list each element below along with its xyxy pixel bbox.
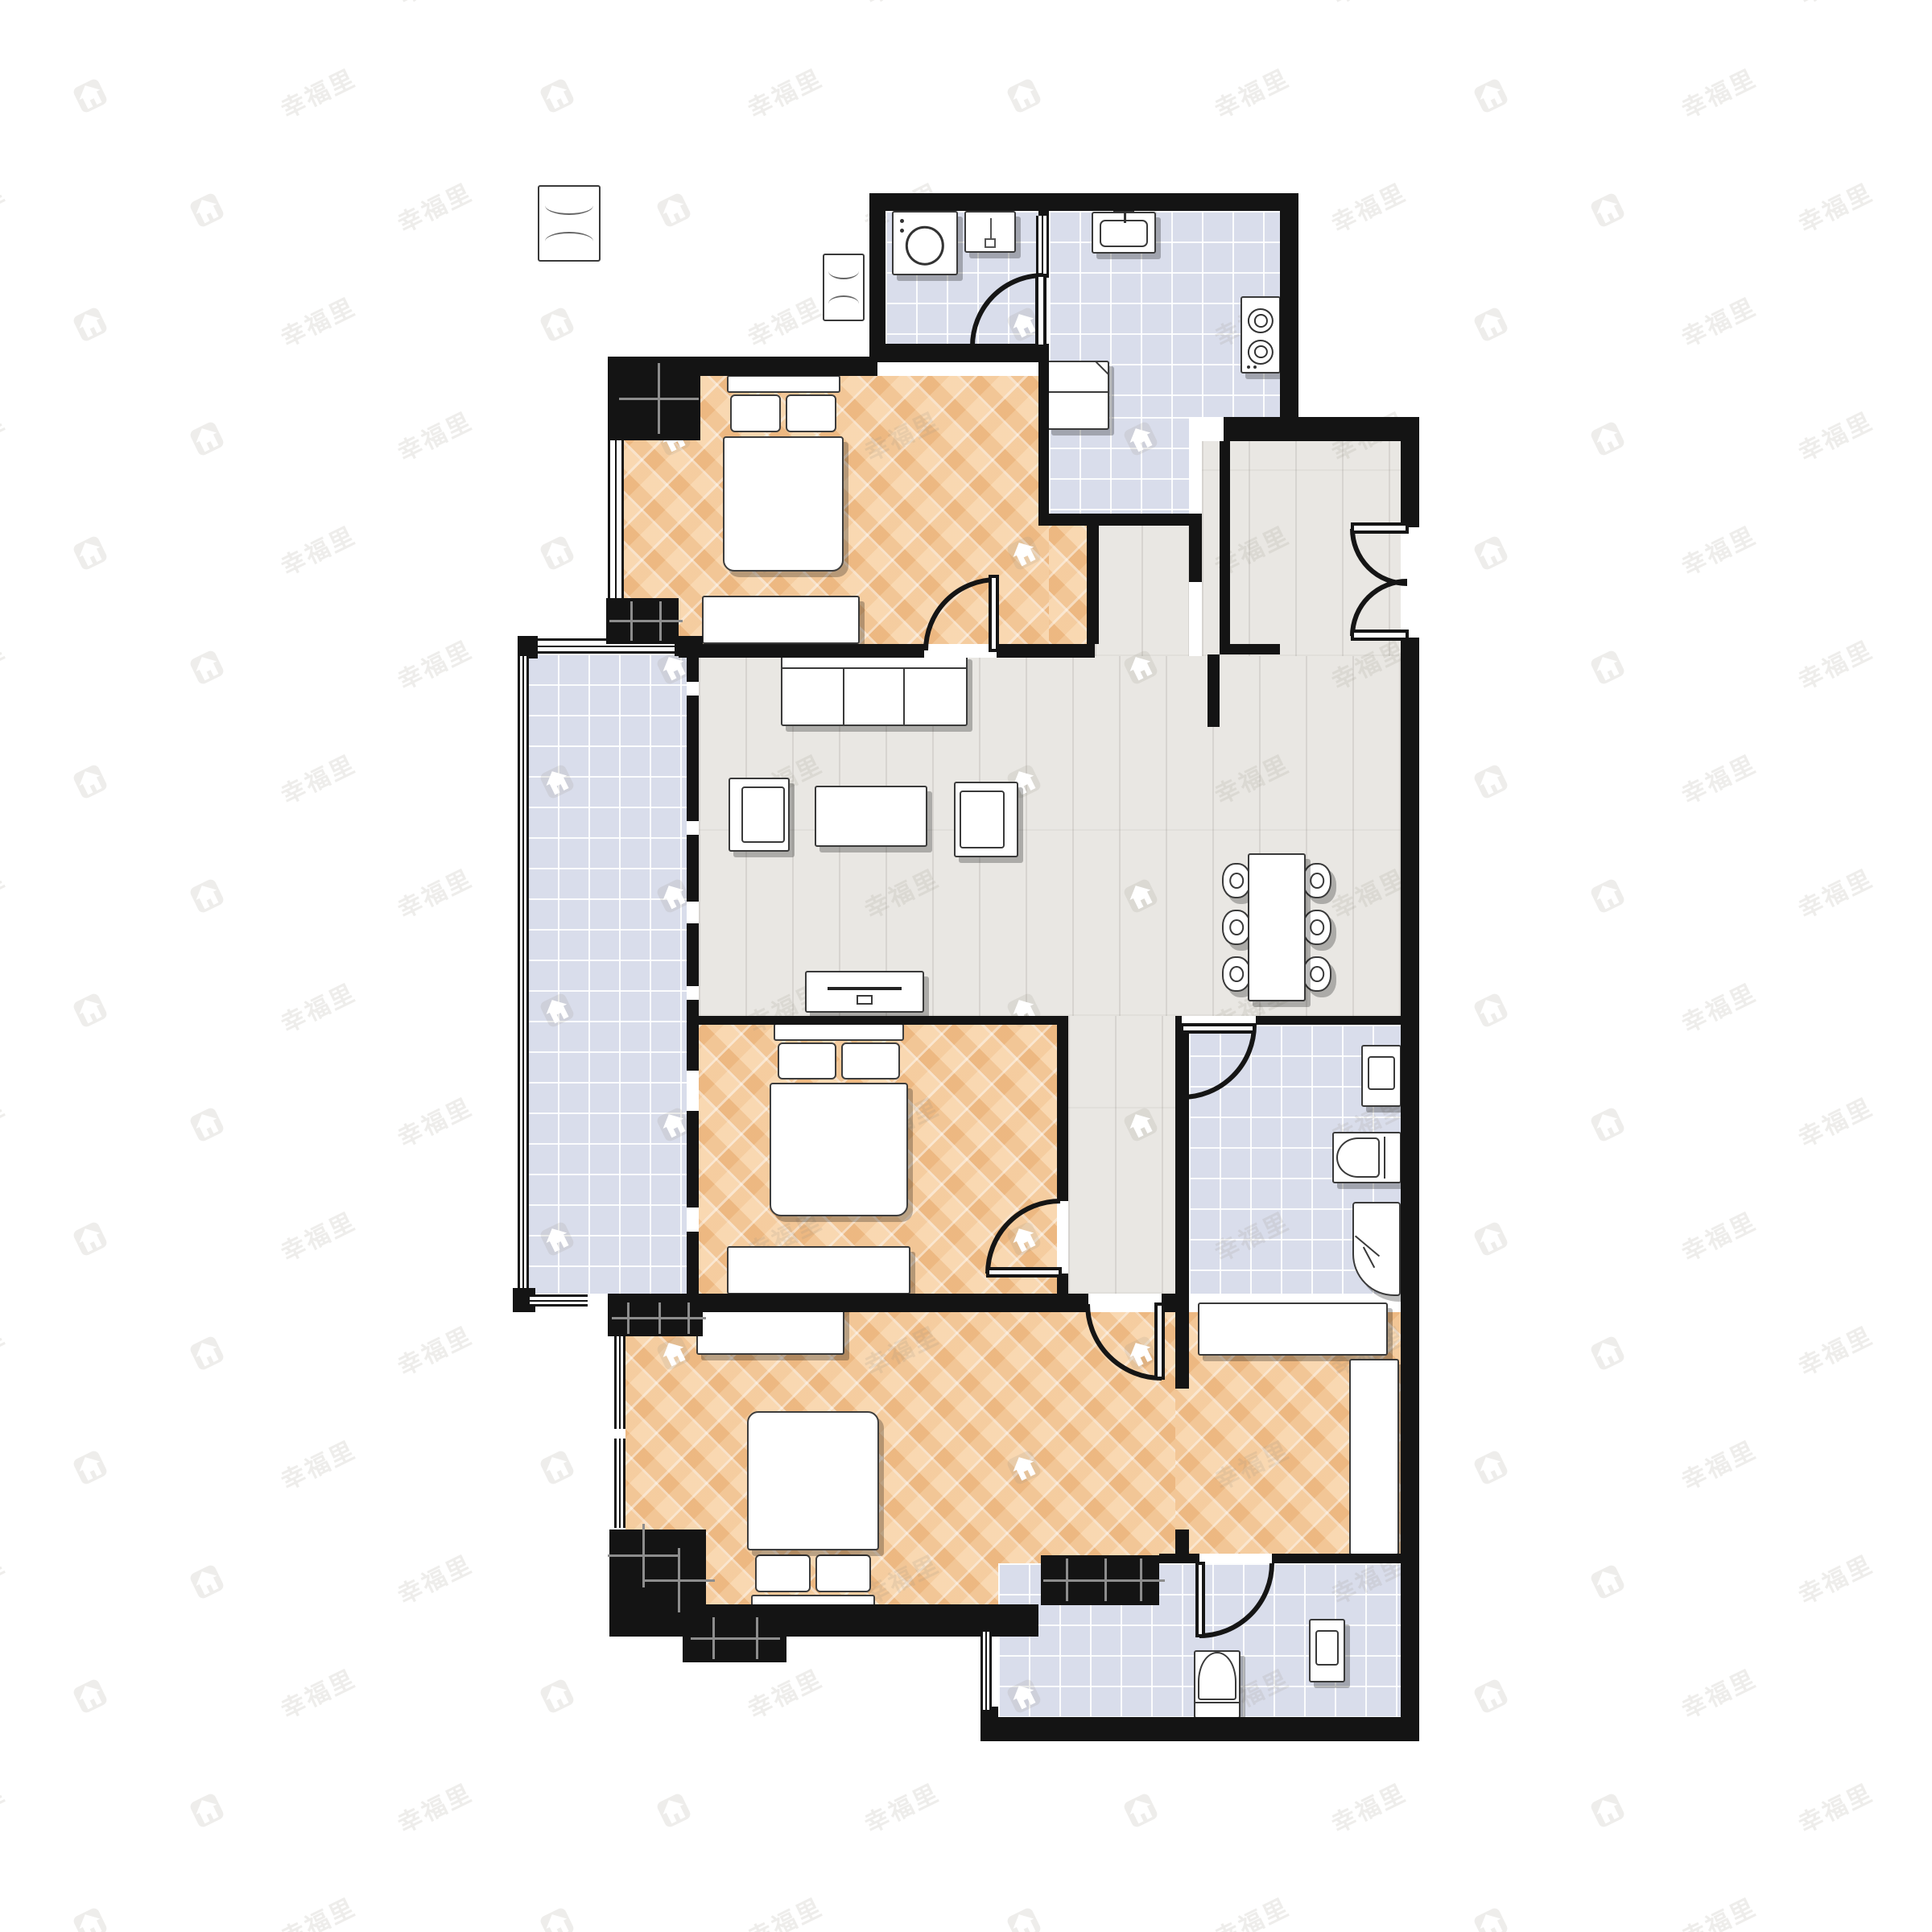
- armchair-seat: [741, 786, 784, 843]
- burner-ring: [1254, 345, 1268, 358]
- watermark-text: 幸福里: [1674, 745, 1761, 811]
- wall-bedroom-top-right: [1038, 344, 1049, 526]
- watermark-text: 幸福里: [390, 1773, 477, 1840]
- armchair-icon: [729, 778, 790, 852]
- watermark-house-icon: [1472, 306, 1509, 342]
- window-master-left-b: [614, 1439, 625, 1528]
- watermark-text: 幸福里: [390, 630, 477, 697]
- room-kitchen-lower: [1049, 417, 1189, 514]
- sink-icon: [1361, 1045, 1402, 1107]
- wall-kitchen-right: [1280, 193, 1298, 424]
- wall-mid-bottom-b: [1162, 1294, 1175, 1312]
- watermark-house-icon: [72, 1220, 108, 1257]
- watermark-text: 幸福里: [274, 287, 361, 354]
- wall-passage-right: [1189, 514, 1202, 582]
- shower-line: [1363, 1246, 1375, 1268]
- window-cross: [658, 363, 660, 435]
- window-cross: [642, 1524, 645, 1588]
- watermark-text: 幸福里: [0, 0, 11, 10]
- watermark-house-icon: [539, 77, 575, 114]
- chair-icon: [1302, 863, 1331, 898]
- bed-pillow: [841, 1042, 899, 1080]
- room-hall-passage: [1095, 526, 1189, 656]
- watermark-house-icon: [1005, 1906, 1042, 1932]
- watermark-house-icon: [1122, 1792, 1158, 1828]
- door-bedroom-mid-gap: [1057, 1201, 1068, 1274]
- wall-passage-left: [1087, 526, 1099, 644]
- watermark-text: 幸福里: [1791, 1545, 1878, 1612]
- ac-icon: [538, 185, 601, 262]
- watermark-house-icon: [188, 1792, 225, 1828]
- chair-seat: [1310, 919, 1324, 935]
- watermark-house-icon: [539, 1449, 575, 1485]
- watermark-house-icon: [72, 992, 108, 1028]
- watermark-text: 幸福里: [0, 1545, 11, 1612]
- watermark-text: 幸福里: [1674, 516, 1761, 583]
- toilet-icon: [1332, 1132, 1402, 1183]
- watermark-house-icon: [1589, 420, 1625, 456]
- watermark-house-icon: [72, 1449, 108, 1485]
- cabinet-icon: [1198, 1302, 1388, 1356]
- watermark-house-icon: [1472, 1449, 1509, 1485]
- watermark-house-icon: [1589, 1335, 1625, 1371]
- bay-block-dressing-bottom: [1041, 1555, 1159, 1605]
- watermark-text: 幸福里: [274, 973, 361, 1040]
- watermark-text: 幸福里: [1791, 0, 1878, 10]
- wall-dressing-bottom-a: [1159, 1554, 1199, 1563]
- chair-icon: [1222, 863, 1251, 898]
- watermark-house-icon: [1005, 77, 1042, 114]
- watermark-house-icon: [1589, 192, 1625, 228]
- wall-right-lower: [1401, 1025, 1419, 1741]
- watermark-house-icon: [188, 1106, 225, 1142]
- bay-block-master-bottom: [683, 1614, 786, 1662]
- watermark-text: 幸福里: [1207, 59, 1294, 126]
- bed-icon: [770, 1023, 908, 1216]
- wall-laundry-left: [869, 193, 885, 362]
- wall-living-balcony: [687, 656, 699, 1016]
- watermark-text: 幸福里: [0, 859, 11, 926]
- watermark-text: 幸福里: [0, 402, 11, 469]
- watermark-house-icon: [1589, 1106, 1625, 1142]
- bed-pillow: [815, 1554, 871, 1593]
- toilet-tank: [1195, 1702, 1239, 1717]
- window-cross: [1104, 1558, 1107, 1601]
- watermark-text: 幸福里: [1324, 0, 1411, 10]
- chair-icon: [1222, 910, 1251, 945]
- watermark-text: 幸福里: [1791, 173, 1878, 240]
- window-cross: [627, 1302, 630, 1333]
- watermark-text: 幸福里: [1674, 287, 1761, 354]
- watermark-text: 幸福里: [1674, 1888, 1761, 1932]
- chair-seat: [1229, 966, 1244, 982]
- watermark-house-icon: [539, 1678, 575, 1714]
- watermark-text: 幸福里: [1674, 1659, 1761, 1726]
- watermark-house-icon: [1472, 992, 1509, 1028]
- wall-bath-bottom: [980, 1717, 1419, 1741]
- stove-icon: [1241, 296, 1281, 374]
- watermark-text: 幸福里: [1791, 630, 1878, 697]
- toilet-icon: [1194, 1650, 1241, 1719]
- watermark-text: 幸福里: [857, 0, 944, 10]
- watermark-house-icon: [1589, 1792, 1625, 1828]
- window-balcony-left: [518, 656, 529, 1288]
- wall-mid-top-a: [687, 1016, 1068, 1025]
- watermark-text: 幸福里: [390, 173, 477, 240]
- fridge-door-split: [1048, 391, 1108, 393]
- watermark-text: 幸福里: [0, 1316, 11, 1383]
- watermark-text: 幸福里: [1791, 402, 1878, 469]
- wall-master-bottom: [609, 1604, 1038, 1637]
- chair-icon: [1222, 956, 1251, 992]
- room-entry-hall: [1202, 441, 1401, 656]
- watermark-house-icon: [188, 1563, 225, 1600]
- watermark-text: 幸福里: [390, 859, 477, 926]
- bay-block-bedroom-top-left: [606, 598, 679, 644]
- wall-bedroom-top-bottom-b: [997, 644, 1095, 658]
- watermark-text: 幸福里: [390, 1316, 477, 1383]
- watermark-house-icon: [188, 420, 225, 456]
- window-master-left-a: [614, 1335, 625, 1429]
- watermark-text: 幸福里: [741, 287, 828, 354]
- wall-bedroom-top-bottom-a: [679, 644, 924, 658]
- wall-bedroom-mid-right-b: [1057, 1274, 1068, 1294]
- cabinet-icon: [702, 596, 860, 644]
- balcony-door-gap-c: [687, 902, 699, 923]
- watermark-house-icon: [188, 649, 225, 685]
- tv-box: [857, 995, 873, 1005]
- watermark-text: 幸福里: [1324, 1773, 1411, 1840]
- washer-icon: [892, 211, 958, 275]
- window-cross: [712, 1617, 715, 1658]
- bed-icon: [747, 1411, 879, 1612]
- window-cross: [756, 1617, 758, 1658]
- bed-pillow: [786, 394, 836, 431]
- burner-ring: [1254, 314, 1268, 327]
- stove-knob: [1247, 365, 1250, 369]
- bay-block-master-bottom-left: [609, 1529, 706, 1604]
- bed-pillow: [755, 1554, 811, 1593]
- window-cross: [658, 1302, 661, 1333]
- toilet-tank: [1384, 1137, 1400, 1179]
- room-balcony: [527, 654, 687, 1294]
- ac-fin: [828, 263, 859, 280]
- sofa-icon: [781, 654, 968, 726]
- bay-block-bedroom-top-corner: [608, 357, 700, 440]
- cabinet-handle: [990, 218, 992, 239]
- window-cross: [1066, 1558, 1068, 1601]
- stove-knob: [1253, 365, 1257, 369]
- bed-body: [723, 436, 844, 572]
- door-laundry-gap: [1038, 278, 1049, 344]
- watermark-house-icon: [72, 1906, 108, 1932]
- bed-body: [770, 1083, 908, 1216]
- watermark-text: 幸福里: [274, 516, 361, 583]
- watermark-text: 幸福里: [390, 0, 477, 10]
- door-master-gap: [1088, 1294, 1162, 1312]
- balcony-door-gap-a: [687, 682, 699, 696]
- watermark-house-icon: [655, 192, 691, 228]
- cabinet-box: [985, 238, 996, 248]
- watermark-house-icon: [1472, 763, 1509, 799]
- watermark-house-icon: [1472, 535, 1509, 571]
- armchair-icon: [954, 782, 1018, 857]
- watermark-text: 幸福里: [1674, 973, 1761, 1040]
- wall-right-upper: [1401, 417, 1419, 527]
- watermark-text: 幸福里: [1674, 1202, 1761, 1269]
- window-cross: [687, 1302, 690, 1333]
- washer-knob: [900, 229, 904, 233]
- watermark-text: 幸福里: [741, 1888, 828, 1932]
- tv-screen: [828, 987, 902, 990]
- watermark-house-icon: [1472, 1220, 1509, 1257]
- watermark-house-icon: [1589, 877, 1625, 914]
- bedroom-mid-window-gap-a: [687, 1071, 699, 1111]
- ksink-icon: [1092, 212, 1156, 254]
- watermark-text: 幸福里: [1791, 859, 1878, 926]
- watermark-house-icon: [72, 535, 108, 571]
- cabinet-icon: [1349, 1359, 1399, 1555]
- watermark-house-icon: [1589, 649, 1625, 685]
- balcony-door-gap-b: [687, 821, 699, 835]
- bed-icon: [723, 375, 844, 572]
- watermark-house-icon: [72, 306, 108, 342]
- room-hallway-strip: [1068, 1016, 1175, 1294]
- wall-laundry-divider: [1038, 193, 1049, 217]
- cabinet-icon: [696, 1305, 844, 1355]
- watermark-text: 幸福里: [274, 1888, 361, 1932]
- cabinet2-icon: [964, 211, 1016, 253]
- sofa-divider: [843, 669, 844, 724]
- watermark-text: 幸福里: [0, 630, 11, 697]
- watermark-house-icon: [72, 1678, 108, 1714]
- cabinet-icon: [727, 1246, 910, 1294]
- watermark-text: 幸福里: [0, 1773, 11, 1840]
- watermark-text: 幸福里: [1324, 173, 1411, 240]
- balcony-door-gap-d: [687, 986, 699, 1000]
- window-cross: [659, 601, 662, 641]
- sink-icon: [1309, 1619, 1345, 1682]
- watermark-text: 幸福里: [274, 745, 361, 811]
- bed-body: [747, 1411, 879, 1550]
- burner: [1248, 340, 1274, 365]
- watermark-text: 幸福里: [274, 1430, 361, 1497]
- watermark-house-icon: [1589, 1563, 1625, 1600]
- watermark-text: 幸福里: [0, 1088, 11, 1154]
- wall-bedroom-mid-right-a: [1057, 1025, 1068, 1201]
- bed-pillow: [778, 1042, 836, 1080]
- chair-seat: [1310, 966, 1324, 982]
- bed-headboard: [727, 375, 840, 393]
- bedroom-mid-window-gap-b: [687, 1207, 699, 1232]
- toilet-bowl: [1336, 1137, 1380, 1178]
- watermark-house-icon: [72, 77, 108, 114]
- watermark-house-icon: [188, 877, 225, 914]
- watermark-text: 幸福里: [1674, 1430, 1761, 1497]
- watermark-house-icon: [539, 535, 575, 571]
- ac-fin: [545, 232, 592, 251]
- chair-seat: [1229, 873, 1244, 889]
- fridge-icon: [1046, 361, 1109, 430]
- watermark-text: 幸福里: [1674, 59, 1761, 126]
- watermark-text: 幸福里: [741, 59, 828, 126]
- watermark-text: 幸福里: [1791, 1773, 1878, 1840]
- washer-drum: [906, 226, 944, 266]
- floor-plan-canvas: 幸福里幸福里幸福里幸福里幸福里幸福里幸福里幸福里幸福里幸福里幸福里幸福里幸福里幸…: [0, 0, 1932, 1932]
- wall-bath-bottom-left-a: [980, 1604, 998, 1632]
- watermark-house-icon: [539, 1906, 575, 1932]
- chair-icon: [1302, 910, 1331, 945]
- wall-laundry-bottom: [873, 344, 1038, 362]
- watermark-house-icon: [539, 306, 575, 342]
- bed-headboard: [774, 1023, 904, 1041]
- sink-basin: [1315, 1630, 1340, 1666]
- watermark-text: 幸福里: [0, 173, 11, 240]
- ac-fin: [545, 196, 592, 215]
- window-bedroom-top-left: [608, 440, 624, 598]
- toilet-bowl: [1198, 1652, 1236, 1700]
- chair-icon: [1302, 956, 1331, 992]
- door-entry-upper-gap: [1401, 527, 1419, 638]
- wall-alcove-left: [1220, 441, 1230, 654]
- watermark-text: 幸福里: [857, 1773, 944, 1840]
- watermark-text: 幸福里: [1791, 1088, 1878, 1154]
- bay-block-master-top-left: [608, 1300, 703, 1336]
- wall-mid-top-b: [1175, 1016, 1183, 1025]
- watermark-text: 幸福里: [390, 1545, 477, 1612]
- watermark-text: 幸福里: [274, 1659, 361, 1726]
- sofa-divider: [903, 669, 905, 724]
- wall-dressing-bottom-b: [1272, 1554, 1401, 1563]
- watermark-house-icon: [72, 763, 108, 799]
- window-balcony-bottom: [530, 1294, 588, 1307]
- watermark-house-icon: [655, 1792, 691, 1828]
- watermark-text: 幸福里: [1207, 1888, 1294, 1932]
- sink-basin: [1368, 1056, 1394, 1090]
- chair-seat: [1229, 919, 1244, 935]
- ac-icon: [823, 254, 865, 321]
- watermark-house-icon: [1472, 77, 1509, 114]
- wall-bath-mid-left: [1175, 1025, 1189, 1389]
- window-bath-bottom-left: [980, 1632, 992, 1710]
- wall-balcony-top: [675, 636, 703, 656]
- watermark-text: 幸福里: [274, 59, 361, 126]
- watermark-house-icon: [188, 1335, 225, 1371]
- watermark-text: 幸福里: [741, 1659, 828, 1726]
- window-cross: [678, 1548, 680, 1612]
- watermark-house-icon: [1472, 1678, 1509, 1714]
- table-icon: [815, 786, 927, 847]
- room-bedroom-top-ext: [1049, 526, 1087, 644]
- bed-pillow: [730, 394, 781, 431]
- watermark-text: 幸福里: [390, 1088, 477, 1154]
- wall-mid-top-c: [1254, 1016, 1401, 1025]
- door-bath-mid-gap: [1182, 1016, 1256, 1025]
- wall-kitchen-ext-bottom: [1049, 514, 1202, 526]
- window-cross: [630, 601, 633, 641]
- armchair-seat: [960, 791, 1005, 848]
- watermark-house-icon: [1472, 1906, 1509, 1932]
- wall-top: [873, 193, 1298, 211]
- fridge-fold: [1096, 361, 1109, 375]
- watermark-text: 幸福里: [1791, 1316, 1878, 1383]
- chair-seat: [1310, 873, 1324, 889]
- wall-right-mid: [1401, 638, 1419, 1025]
- window-cross: [1140, 1558, 1142, 1601]
- table-icon: [1248, 853, 1306, 1001]
- wall-balcony-corner-tl: [518, 636, 538, 658]
- window-laundry-kitchen: [1036, 216, 1049, 278]
- watermark-text: 幸福里: [274, 1202, 361, 1269]
- wall-alcove-stub: [1207, 654, 1220, 727]
- washer-knob: [900, 219, 904, 223]
- burner: [1248, 308, 1274, 333]
- sink-basin: [1100, 220, 1149, 248]
- watermark-text: 幸福里: [390, 402, 477, 469]
- wall-hall-top: [1224, 417, 1403, 441]
- wall-alcove-bottom: [1220, 644, 1280, 654]
- tv-icon: [805, 971, 924, 1013]
- watermark-house-icon: [188, 192, 225, 228]
- wall-bedroom-mid-left: [687, 1025, 699, 1294]
- ac-fin: [828, 295, 859, 312]
